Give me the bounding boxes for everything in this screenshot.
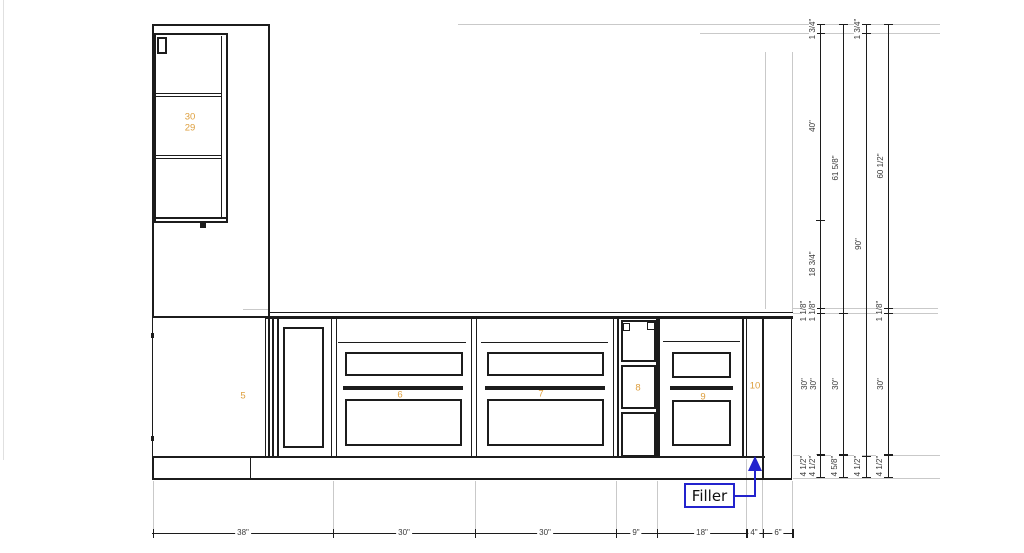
dimension-tick — [884, 24, 893, 26]
drawer-front[interactable] — [672, 352, 731, 378]
filler-edge-line — [746, 318, 748, 456]
dimension-chain-line — [843, 24, 844, 478]
dimension-label: 90" — [855, 237, 863, 251]
cabinet-number: 5 — [240, 391, 245, 401]
frame-stile-line — [658, 318, 660, 456]
drawer-front[interactable] — [345, 352, 463, 377]
dimension-tick — [763, 529, 765, 538]
countertop-top-line — [268, 312, 793, 314]
frame-stile-line — [613, 318, 615, 456]
extension-line — [765, 52, 766, 309]
floor-line — [152, 478, 792, 480]
frame-stile-line — [331, 318, 333, 456]
dimension-label: 4" — [748, 529, 759, 537]
dimension-label: 4 1/2" — [854, 455, 862, 478]
dimension-label: 4 1/2" — [800, 455, 808, 478]
filler-leader-line — [754, 469, 757, 497]
shelf-line — [156, 93, 221, 95]
dimension-tick — [816, 220, 825, 222]
kitchen-elevation-drawing: 1 3/4" 40" 18 3/4" 1 1/8" 1 1/8" 30" 30"… — [0, 0, 1024, 553]
hinge-block — [647, 322, 655, 330]
frame-stile-line — [742, 318, 744, 456]
hinge-mark — [151, 333, 154, 338]
end-panel-line — [791, 317, 793, 478]
top-rail-line — [338, 342, 466, 343]
dimension-label: 40" — [809, 119, 817, 133]
lower-front[interactable] — [345, 399, 462, 446]
dimension-label: 4 1/2" — [876, 455, 884, 478]
dimension-label: 30" — [537, 529, 553, 537]
cabinet-number: 7 — [538, 389, 543, 399]
extension-line — [243, 309, 268, 310]
dimension-label: 1 3/4" — [854, 18, 862, 41]
shelf-line — [156, 158, 221, 159]
lower-front[interactable] — [672, 400, 731, 446]
cabinet-vent-notch — [157, 37, 167, 54]
filler-callout-box[interactable]: Filler — [684, 483, 735, 508]
toe-kick-line — [152, 456, 765, 458]
tall-cabinet-stile-line — [221, 36, 223, 218]
dimension-tick — [862, 33, 871, 35]
mid-rail — [670, 386, 733, 390]
narrow-cabinet-bottom-panel[interactable] — [621, 412, 656, 457]
filler-callout-label: Filler — [692, 487, 727, 505]
tall-cabinet-bottom-rail — [156, 217, 226, 219]
dimension-label: 61 5/8" — [832, 154, 840, 181]
filler-arrow-icon — [748, 456, 762, 471]
lower-front[interactable] — [487, 399, 604, 446]
dimension-tick — [884, 308, 893, 310]
extension-line — [746, 459, 747, 538]
wall-corner-line — [268, 24, 270, 318]
frame-stile-line — [471, 318, 473, 456]
frame-stile-line — [277, 318, 279, 456]
door-handle — [200, 222, 206, 228]
dimension-tick — [839, 313, 848, 315]
dimension-tick — [333, 529, 335, 538]
dimension-tick — [657, 529, 659, 538]
dimension-label: 18" — [694, 529, 710, 537]
dimension-label: 1 1/8" — [876, 300, 884, 323]
cabinet-number: 29 — [185, 123, 196, 133]
frame-stile-line — [336, 318, 338, 456]
dimension-tick — [862, 456, 871, 458]
corner-stile-line — [272, 318, 274, 457]
cabinet-number: 10 — [750, 381, 761, 391]
mid-rail — [485, 386, 605, 390]
dimension-tick — [839, 454, 848, 456]
dimension-tick — [616, 529, 618, 538]
toe-kick-divider-line — [250, 456, 252, 478]
mid-rail — [343, 386, 463, 390]
shelf-line — [156, 96, 221, 97]
dimension-tick — [475, 529, 477, 538]
dimension-label: 30" — [810, 377, 818, 391]
hinge-mark — [151, 436, 154, 441]
dimension-chain-line — [888, 24, 889, 478]
dimension-tick — [839, 477, 848, 479]
dimension-label: 1 1/8" — [809, 300, 817, 323]
soffit-top-line — [152, 24, 270, 26]
top-rail-line — [663, 341, 740, 342]
dimension-label: 30" — [396, 529, 412, 537]
dimension-label: 6" — [772, 529, 783, 537]
dimension-label: 60 1/2" — [877, 152, 885, 179]
dimension-tick — [839, 24, 848, 26]
extension-line — [792, 52, 793, 312]
dimension-tick — [884, 477, 893, 479]
dimension-label: 4 1/2" — [809, 455, 817, 478]
top-rail-line — [481, 342, 608, 343]
dimension-label: 30" — [832, 377, 840, 391]
drawer-front[interactable] — [487, 352, 605, 377]
base-cabinet-5-outline[interactable] — [152, 317, 266, 457]
hinge-block — [623, 323, 630, 331]
cabinet-number: 30 — [185, 112, 196, 122]
corner-stile-line — [268, 318, 270, 457]
dimension-tick — [884, 454, 893, 456]
dimension-label: 9" — [630, 529, 641, 537]
cabinet-number: 8 — [635, 383, 640, 393]
end-panel-line — [762, 317, 764, 478]
dimension-tick — [153, 529, 155, 538]
shelf-line — [156, 155, 221, 157]
dimension-tick — [746, 529, 748, 538]
dimension-tick — [862, 24, 871, 26]
dimension-chain-line — [820, 24, 821, 478]
dimension-label: 30" — [801, 377, 809, 391]
dimension-label: 38" — [235, 529, 251, 537]
dimension-label: 18 3/4" — [809, 250, 817, 277]
dimension-label: 30" — [877, 377, 885, 391]
cabinet-number: 6 — [397, 390, 402, 400]
frame-stile-line — [476, 318, 478, 456]
frame-stile-line — [617, 318, 619, 458]
blind-corner-door-panel[interactable] — [283, 327, 324, 448]
dimension-chain-line — [866, 24, 867, 478]
dimension-label: 1 1/8" — [800, 300, 808, 323]
dimension-label: 4 5/8" — [831, 455, 839, 478]
window-edge-line — [3, 0, 4, 460]
cabinet-number: 9 — [700, 392, 705, 402]
dimension-tick — [884, 313, 893, 315]
dimension-tick — [792, 529, 794, 538]
dimension-tick — [862, 477, 871, 479]
dimension-label: 1 3/4" — [809, 18, 817, 41]
